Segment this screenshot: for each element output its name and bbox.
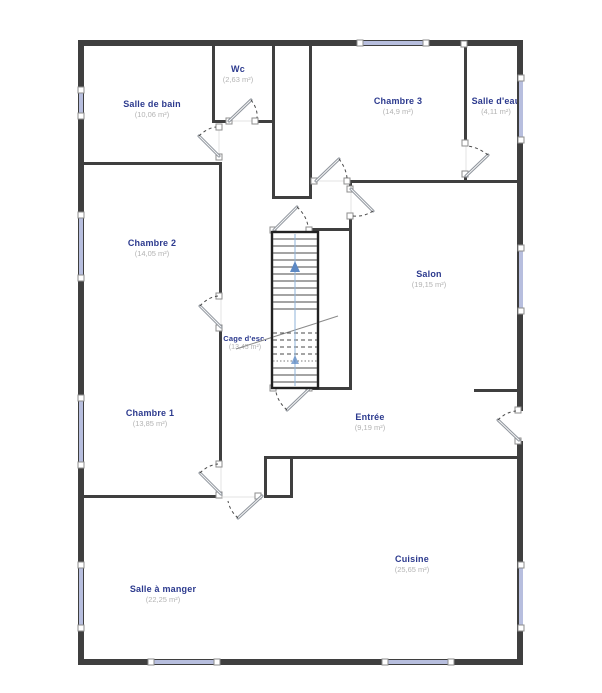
room-name: Chambre 1 [126, 408, 174, 418]
room-area: (25,65 m²) [395, 565, 430, 574]
room-name: Salon [412, 269, 447, 279]
room-area: (19,15 m²) [412, 280, 447, 289]
door-salle-d-eau [462, 140, 488, 177]
window-end-caps [78, 40, 524, 665]
room-label-wc: Wc (2,63 m²) [223, 64, 253, 84]
room-name: Cage d'esc. [223, 334, 267, 343]
doors [199, 100, 521, 518]
door-wc [226, 100, 258, 124]
room-label-chambre-2: Chambre 2 (14,05 m²) [128, 238, 176, 258]
door-stair-bottom [270, 385, 312, 410]
door-salle-de-bain [199, 124, 222, 160]
room-label-cuisine: Cuisine (25,65 m²) [395, 554, 430, 574]
windows [78, 40, 524, 665]
room-area: (4,11 m²) [472, 107, 521, 116]
room-name: Chambre 3 [374, 96, 422, 106]
staircase [236, 232, 338, 388]
door-stair-top [270, 207, 312, 233]
room-label-salon: Salon (19,15 m²) [412, 269, 447, 289]
room-area: (14,05 m²) [128, 249, 176, 258]
room-label-cage-escalier: Cage d'esc. (13,45 m²) [223, 334, 267, 351]
room-area: (2,63 m²) [223, 75, 253, 84]
exterior-walls [78, 40, 523, 665]
room-label-salle-de-bain: Salle de bain (10,06 m²) [123, 99, 181, 119]
room-name: Salle d'eau [472, 96, 521, 106]
room-name: Salle à manger [130, 584, 196, 594]
stair-up-arrow-icon [290, 261, 300, 272]
room-name: Chambre 2 [128, 238, 176, 248]
door-chambre-3 [311, 159, 350, 184]
door-salon [347, 186, 373, 219]
door-exterior-right [498, 407, 521, 444]
door-chambre-1 [200, 461, 222, 498]
room-area: (13,45 m²) [223, 344, 267, 351]
room-area: (10,06 m²) [123, 110, 181, 119]
room-label-chambre-1: Chambre 1 (13,85 m²) [126, 408, 174, 428]
room-name: Wc [223, 64, 253, 74]
room-label-salle-a-manger: Salle à manger (22,25 m²) [130, 584, 196, 604]
room-name: Salle de bain [123, 99, 181, 109]
room-label-entree: Entrée (9,19 m²) [355, 412, 385, 432]
stair-steps [273, 239, 317, 382]
room-area: (14,9 m²) [374, 107, 422, 116]
door-salle-a-manger [221, 493, 262, 518]
room-name: Entrée [355, 412, 385, 422]
room-label-salle-d-eau: Salle d'eau (4,11 m²) [472, 96, 521, 116]
room-area: (9,19 m²) [355, 423, 385, 432]
stair-lower-arrow-icon [291, 355, 299, 364]
room-name: Cuisine [395, 554, 430, 564]
floor-plan: Salle de bain (10,06 m²) Wc (2,63 m²) Ch… [0, 0, 602, 693]
room-area: (13,85 m²) [126, 419, 174, 428]
room-label-chambre-3: Chambre 3 (14,9 m²) [374, 96, 422, 116]
door-chambre-2 [200, 293, 222, 331]
room-area: (22,25 m²) [130, 595, 196, 604]
